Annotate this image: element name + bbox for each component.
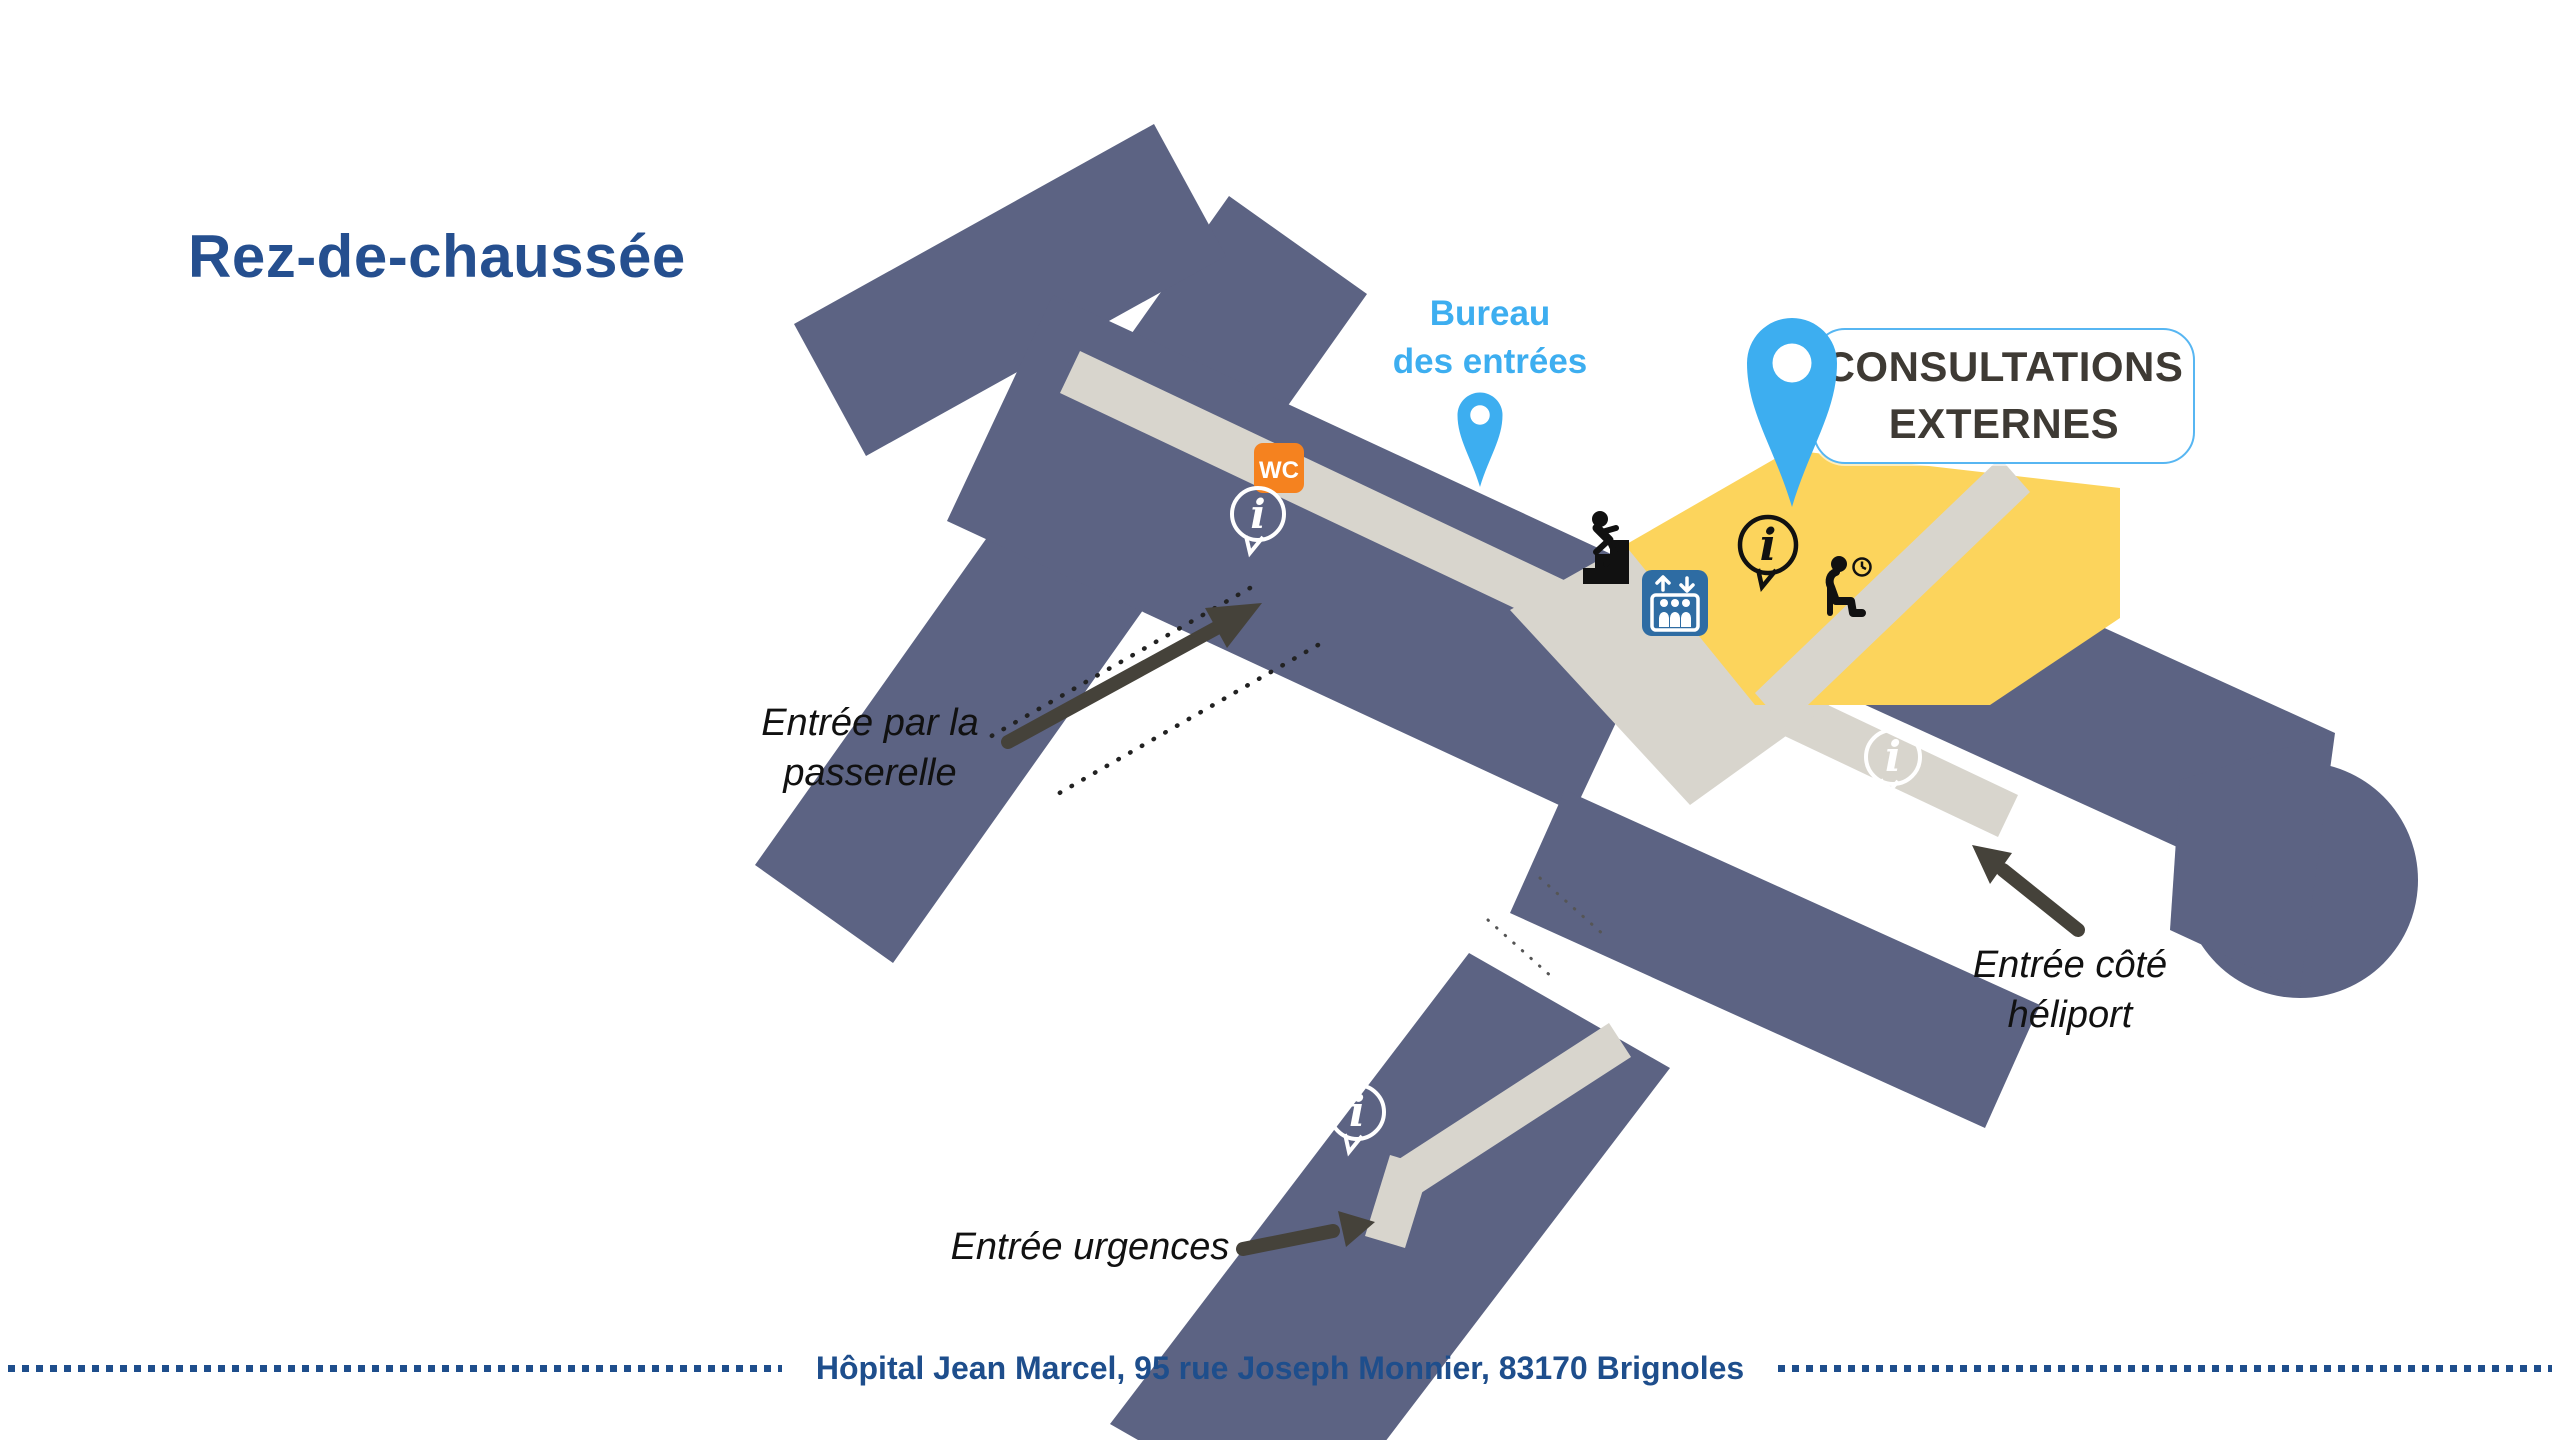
footer-dotted-line-right	[1778, 1365, 2552, 1372]
footer-address: Hôpital Jean Marcel, 95 rue Joseph Monni…	[790, 1350, 1770, 1387]
entrance-heliport-label: Entrée côté héliport	[1905, 940, 2235, 1040]
consultations-line1: CONSULTATIONS	[1825, 339, 2184, 396]
svg-text:i: i	[1349, 1087, 1365, 1136]
svg-text:WC: WC	[1259, 457, 1299, 484]
floorplan-map: WC i i i i	[0, 0, 2560, 1440]
consultations-line2: EXTERNES	[1889, 396, 2119, 453]
bureau-des-entrees-label: Bureau des entrées	[1360, 290, 1620, 387]
svg-text:i: i	[1760, 520, 1777, 571]
footer-dotted-line-left	[8, 1365, 782, 1372]
elevator-icon	[1642, 570, 1708, 636]
floorplan-page: WC i i i i	[0, 0, 2560, 1440]
bureau-label-line1: Bureau	[1360, 290, 1620, 338]
svg-text:i: i	[1885, 732, 1901, 781]
page-title: Rez-de-chaussée	[188, 222, 686, 291]
entrance-passerelle-label: Entrée par la passerelle	[700, 698, 1040, 798]
bureau-label-line2: des entrées	[1360, 338, 1620, 386]
arrow-heliport	[1972, 845, 2078, 930]
consultations-externes-callout: CONSULTATIONS EXTERNES	[1813, 328, 2195, 464]
footer-address-bar: Hôpital Jean Marcel, 95 rue Joseph Monni…	[0, 1342, 2560, 1394]
wc-icon: WC	[1254, 443, 1304, 493]
svg-text:i: i	[1250, 491, 1265, 538]
entrance-urgences-label: Entrée urgences	[920, 1222, 1260, 1272]
